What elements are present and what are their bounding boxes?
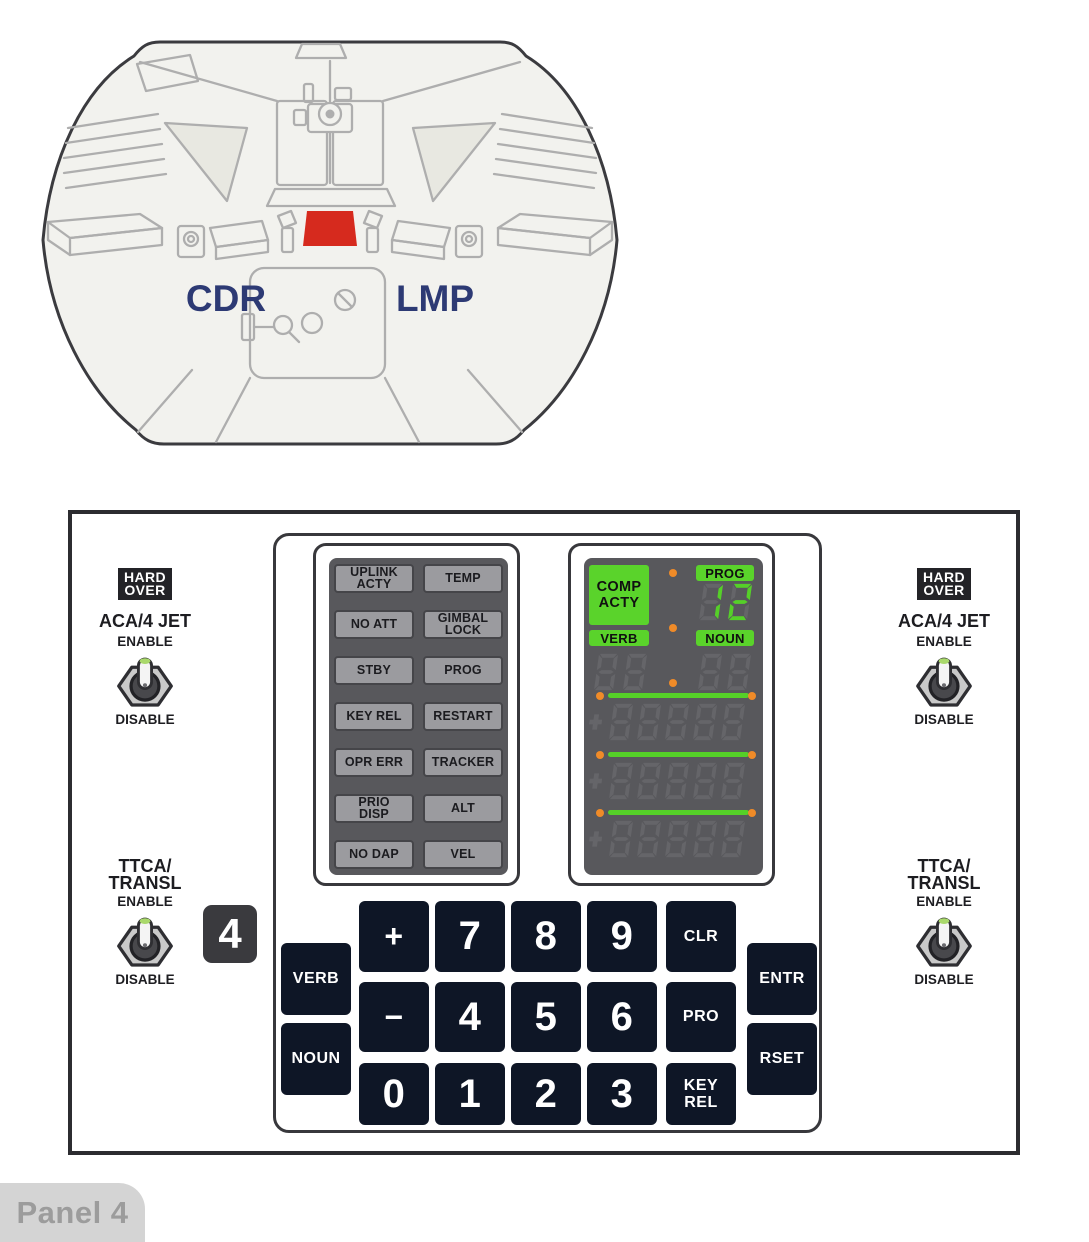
- pro-key[interactable]: PRO: [666, 982, 736, 1052]
- rset-key[interactable]: RSET: [747, 1023, 817, 1095]
- seven-segment-digit: [720, 702, 746, 742]
- digit-6-key[interactable]: 6: [587, 982, 657, 1052]
- register-row: [584, 810, 763, 868]
- bar-dot-right: [748, 751, 756, 759]
- warning-light-tracker: TRACKER: [423, 748, 503, 777]
- aca-jet-label-left: ACA/4 JET: [75, 613, 215, 630]
- footer-panel-badge: Panel 4: [0, 1183, 145, 1242]
- digit-3-key[interactable]: 3: [587, 1063, 657, 1125]
- seven-segment-digit: [636, 702, 662, 742]
- register-area: [584, 558, 763, 875]
- warning-lights-box: UPLINKACTYTEMPNO ATTGIMBALLOCKSTBYPROGKE…: [313, 543, 520, 886]
- bar-dot-left: [596, 751, 604, 759]
- seven-segment-sign: [588, 702, 606, 742]
- digit-9-key[interactable]: 9: [587, 901, 657, 972]
- warning-light-restart: RESTART: [423, 702, 503, 731]
- seven-segment-sign: [588, 819, 606, 859]
- seven-segment-digit: [664, 702, 690, 742]
- hard-over-badge-left: HARD OVER: [75, 568, 215, 600]
- aca-enable-label-right: ENABLE: [874, 634, 1014, 649]
- aca-disable-label-left: DISABLE: [75, 712, 215, 727]
- hard-over-line2: OVER: [923, 582, 964, 598]
- seven-segment-digit: [720, 761, 746, 801]
- bar-dot-left: [596, 809, 604, 817]
- lmp-label: LMP: [396, 278, 474, 319]
- warning-light-uplink-acty: UPLINKACTY: [334, 564, 414, 593]
- aca-jet-toggle-right[interactable]: [915, 650, 973, 714]
- aca-jet-label-right: ACA/4 JET: [874, 613, 1014, 630]
- footer-panel-label: Panel 4: [16, 1195, 128, 1231]
- warning-light-no-dap: NO DAP: [334, 840, 414, 869]
- display-box: COMP ACTY PROG VERB NOUN: [568, 543, 775, 886]
- seven-segment-digit: [636, 819, 662, 859]
- key-rel-key[interactable]: KEY REL: [666, 1063, 736, 1125]
- seven-segment-digit: [664, 761, 690, 801]
- register-digits: [608, 702, 746, 742]
- digit-2-key[interactable]: 2: [511, 1063, 581, 1125]
- ttca-label-right: TTCA/ TRANSL: [874, 858, 1014, 892]
- register-sign: [588, 702, 606, 742]
- ttca-enable-label-right: ENABLE: [874, 894, 1014, 909]
- register-row: [584, 752, 763, 810]
- warning-light-temp: TEMP: [423, 564, 503, 593]
- seven-segment-digit: [608, 819, 634, 859]
- aca-disable-label-right: DISABLE: [874, 712, 1014, 727]
- register-row: [584, 693, 763, 751]
- cockpit-diagram: CDR LMP: [40, 28, 620, 452]
- ttca-line2: TRANSL: [109, 873, 182, 893]
- noun-key[interactable]: NOUN: [281, 1023, 351, 1095]
- seven-segment-digit: [692, 761, 718, 801]
- register-sign: [588, 819, 606, 859]
- minus-key[interactable]: −: [359, 982, 429, 1052]
- ttca-label-left: TTCA/ TRANSL: [75, 858, 215, 892]
- ttca-line2: TRANSL: [908, 873, 981, 893]
- seven-segment-sign: [588, 761, 606, 801]
- ttca-disable-label-right: DISABLE: [874, 972, 1014, 987]
- cdr-label: CDR: [186, 278, 266, 319]
- bar-dot-right: [748, 809, 756, 817]
- digit-8-key[interactable]: 8: [511, 901, 581, 972]
- seven-segment-digit: [636, 761, 662, 801]
- digit-1-key[interactable]: 1: [435, 1063, 505, 1125]
- warning-light-no-att: NO ATT: [334, 610, 414, 639]
- seven-segment-digit: [608, 702, 634, 742]
- panel4-location-marker: [303, 211, 357, 246]
- ttca-toggle-right[interactable]: [915, 910, 973, 974]
- warning-light-vel: VEL: [423, 840, 503, 869]
- plus-key[interactable]: +: [359, 901, 429, 972]
- warning-light-stby: STBY: [334, 656, 414, 685]
- verb-key[interactable]: VERB: [281, 943, 351, 1015]
- warning-light-alt: ALT: [423, 794, 503, 823]
- seven-segment-digit: [664, 819, 690, 859]
- bar-dot-right: [748, 692, 756, 700]
- key-rel-line2: REL: [684, 1094, 718, 1111]
- digit-5-key[interactable]: 5: [511, 982, 581, 1052]
- hard-over-badge-right: HARD OVER: [874, 568, 1014, 600]
- aca-enable-label-left: ENABLE: [75, 634, 215, 649]
- digit-0-key[interactable]: 0: [359, 1063, 429, 1125]
- key-rel-line1: KEY: [684, 1077, 718, 1094]
- warning-light-prog: PROG: [423, 656, 503, 685]
- warning-light-key-rel: KEY REL: [334, 702, 414, 731]
- aca-jet-toggle-left[interactable]: [116, 650, 174, 714]
- register-digits: [608, 819, 746, 859]
- register-sign: [588, 761, 606, 801]
- seven-segment-digit: [720, 819, 746, 859]
- digit-4-key[interactable]: 4: [435, 982, 505, 1052]
- warning-light-gimbal-lock: GIMBALLOCK: [423, 610, 503, 639]
- seven-segment-digit: [692, 819, 718, 859]
- digit-7-key[interactable]: 7: [435, 901, 505, 972]
- entr-key[interactable]: ENTR: [747, 943, 817, 1015]
- warning-light-opr-err: OPR ERR: [334, 748, 414, 777]
- panel-number-badge: 4: [203, 905, 257, 963]
- hard-over-line2: OVER: [124, 582, 165, 598]
- ttca-disable-label-left: DISABLE: [75, 972, 215, 987]
- ttca-toggle-left[interactable]: [116, 910, 174, 974]
- ttca-enable-label-left: ENABLE: [75, 894, 215, 909]
- page: CDR LMP UPLINKACTYTEMPNO ATTGIMBALLOCKST…: [0, 0, 1089, 1242]
- seven-segment-digit: [692, 702, 718, 742]
- register-separator-bar: [608, 752, 749, 757]
- register-separator-bar: [608, 693, 749, 698]
- warning-light-prio-disp: PRIODISP: [334, 794, 414, 823]
- clr-key[interactable]: CLR: [666, 901, 736, 972]
- warning-lights-grid: UPLINKACTYTEMPNO ATTGIMBALLOCKSTBYPROGKE…: [329, 558, 508, 875]
- warning-lights-panel: UPLINKACTYTEMPNO ATTGIMBALLOCKSTBYPROGKE…: [329, 558, 508, 875]
- register-separator-bar: [608, 810, 749, 815]
- display-panel: COMP ACTY PROG VERB NOUN: [584, 558, 763, 875]
- seven-segment-digit: [608, 761, 634, 801]
- bar-dot-left: [596, 692, 604, 700]
- register-digits: [608, 761, 746, 801]
